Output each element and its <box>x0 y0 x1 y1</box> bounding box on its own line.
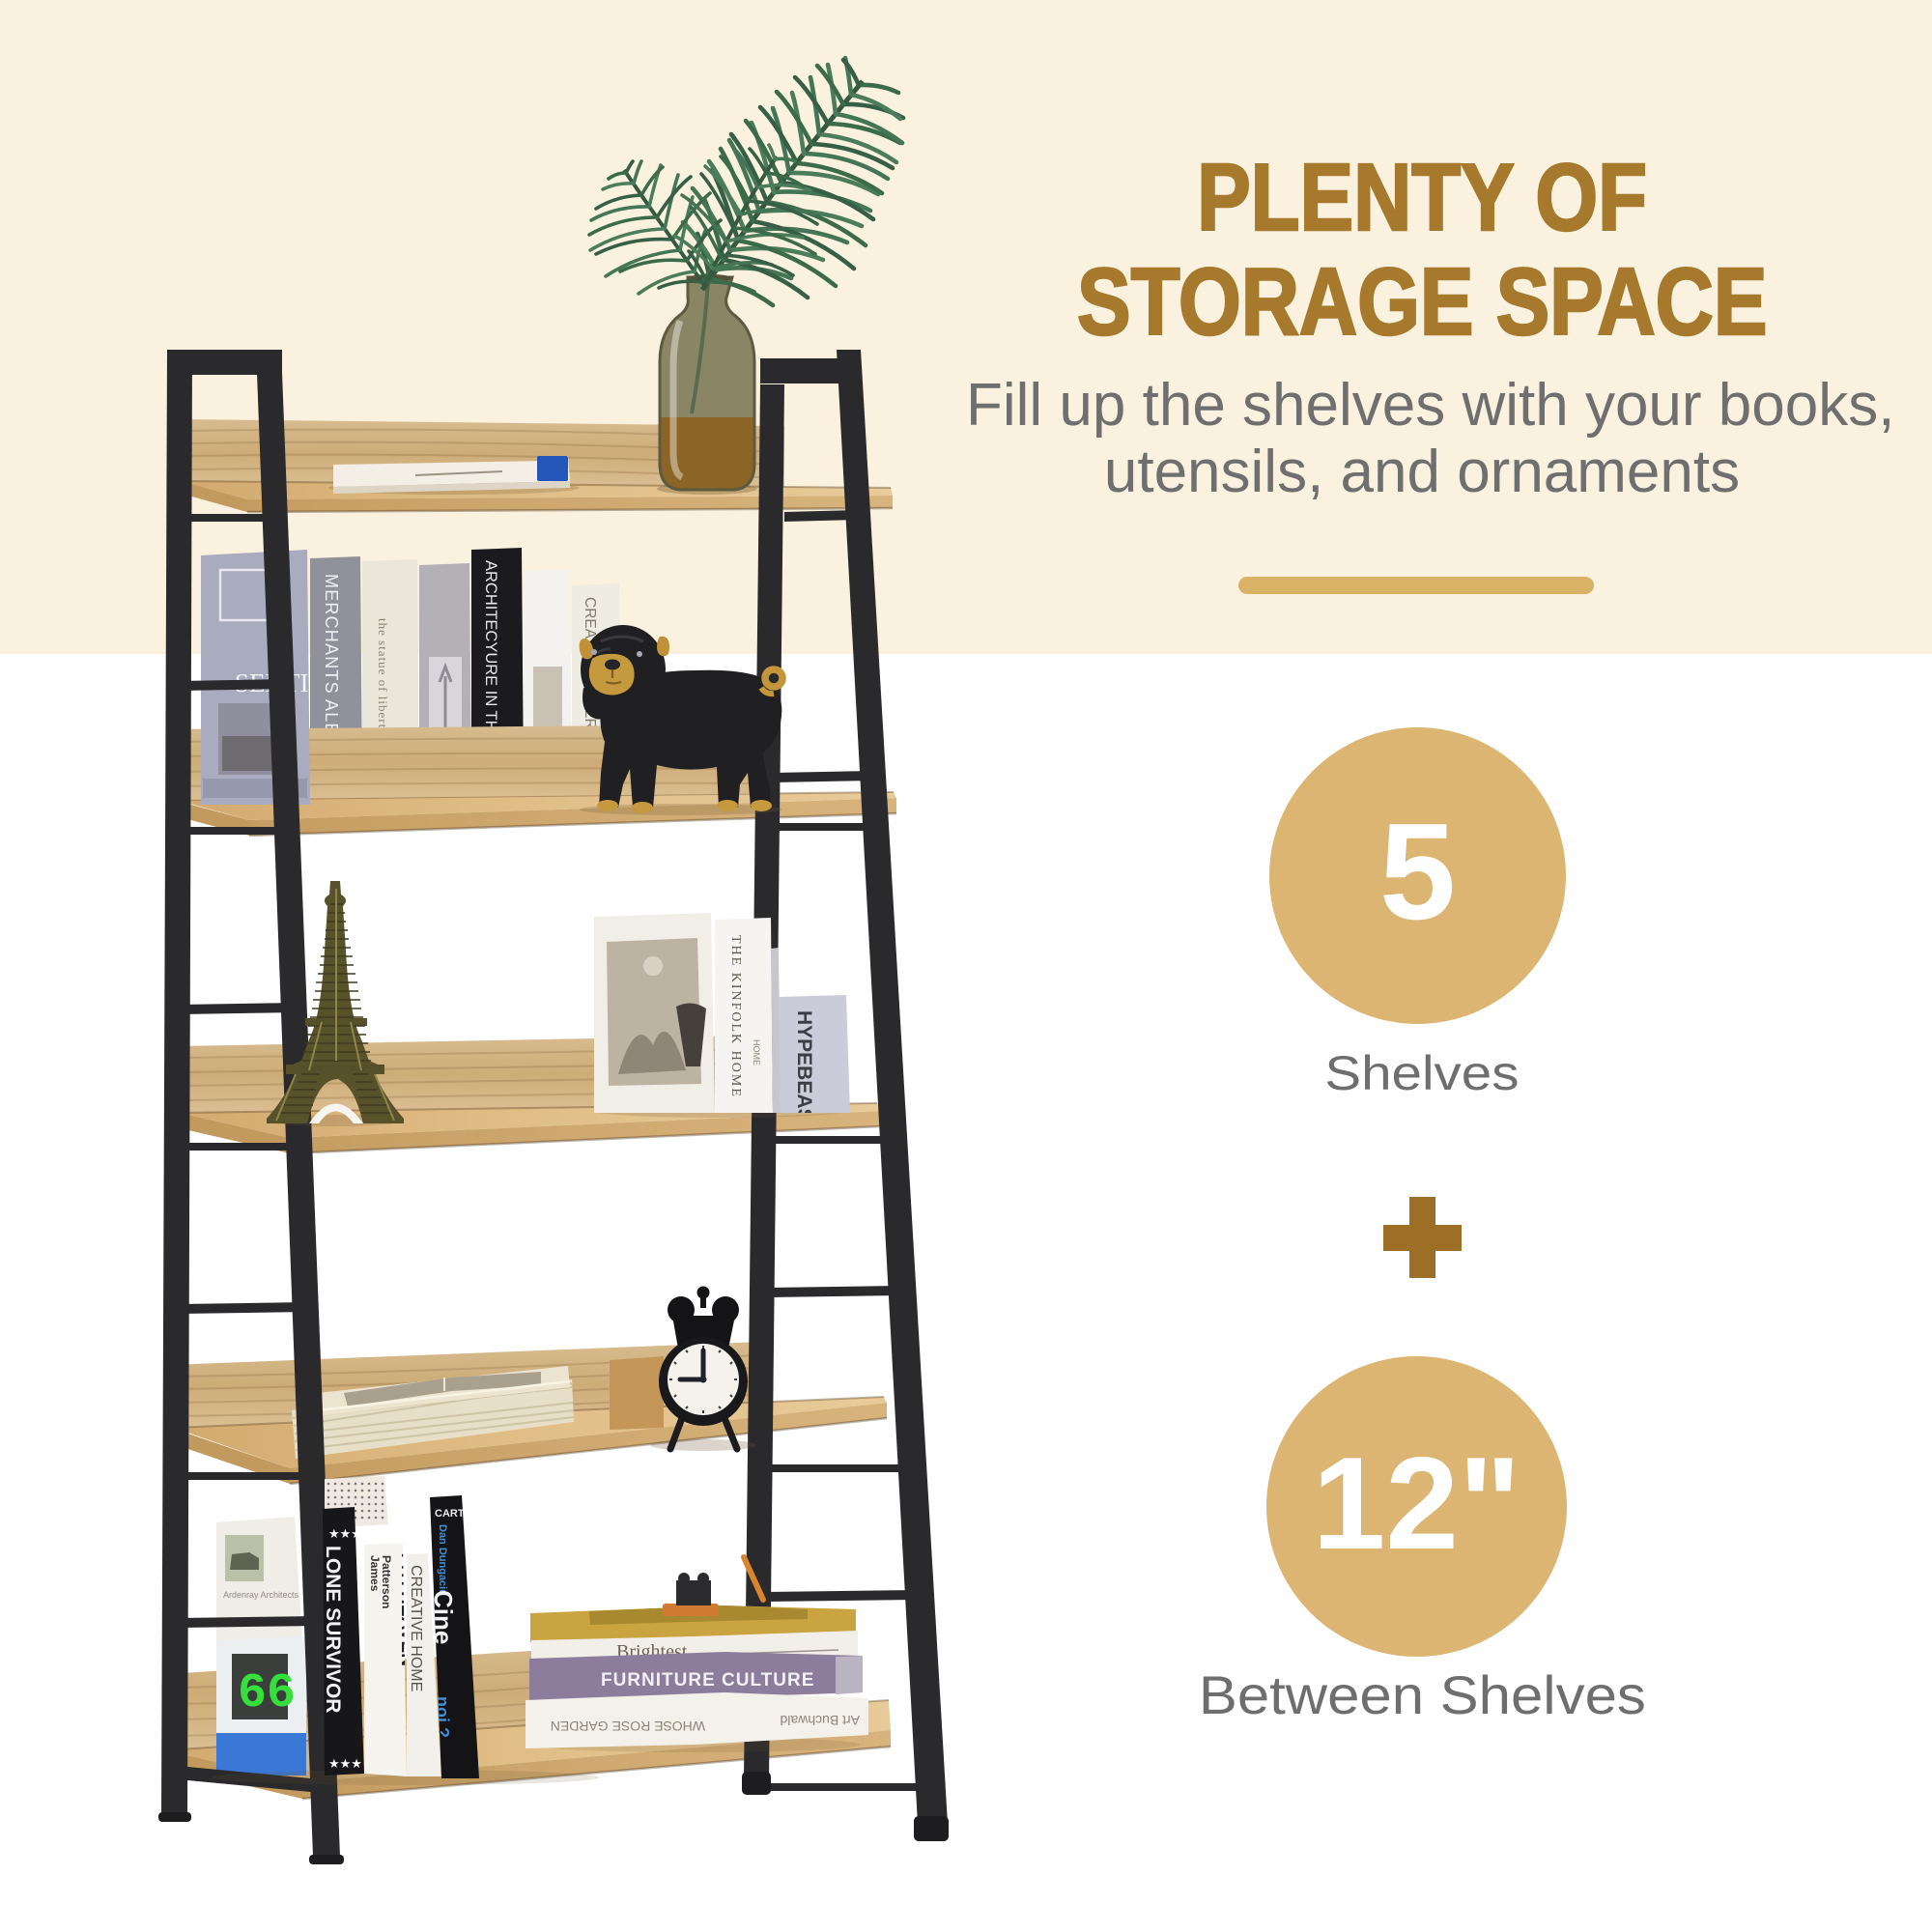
svg-text:WHOSE ROSE GARDEN: WHOSE ROSE GARDEN <box>551 1719 705 1734</box>
svg-text:CREATIVE HOME: CREATIVE HOME <box>408 1565 424 1691</box>
svg-text:HOME: HOME <box>752 1039 761 1065</box>
svg-text:66: 66 <box>238 1666 296 1721</box>
svg-text:★★★: ★★★ <box>328 1526 362 1541</box>
svg-text:Ardenray Architects: Ardenray Architects <box>223 1590 299 1600</box>
svg-text:the statue of liberty: the statue of liberty <box>376 618 390 736</box>
svg-text:LONE SURVIVOR: LONE SURVIVOR <box>322 1546 344 1713</box>
svg-text:James: James <box>368 1555 382 1592</box>
svg-text:CARTIER: CARTIER <box>435 1508 482 1520</box>
svg-text:THE KINFOLK HOME: THE KINFOLK HOME <box>728 935 743 1098</box>
svg-text:★★★: ★★★ <box>328 1756 362 1771</box>
svg-text:Dan Dungaciu: Dan Dungaciu <box>437 1524 448 1596</box>
svg-text:Art Buchwald: Art Buchwald <box>781 1713 860 1728</box>
svg-text:FURNITURE CULTURE: FURNITURE CULTURE <box>601 1670 814 1690</box>
svg-text:Cine: Cine <box>429 1590 458 1644</box>
svg-text:Patterson: Patterson <box>380 1555 393 1608</box>
